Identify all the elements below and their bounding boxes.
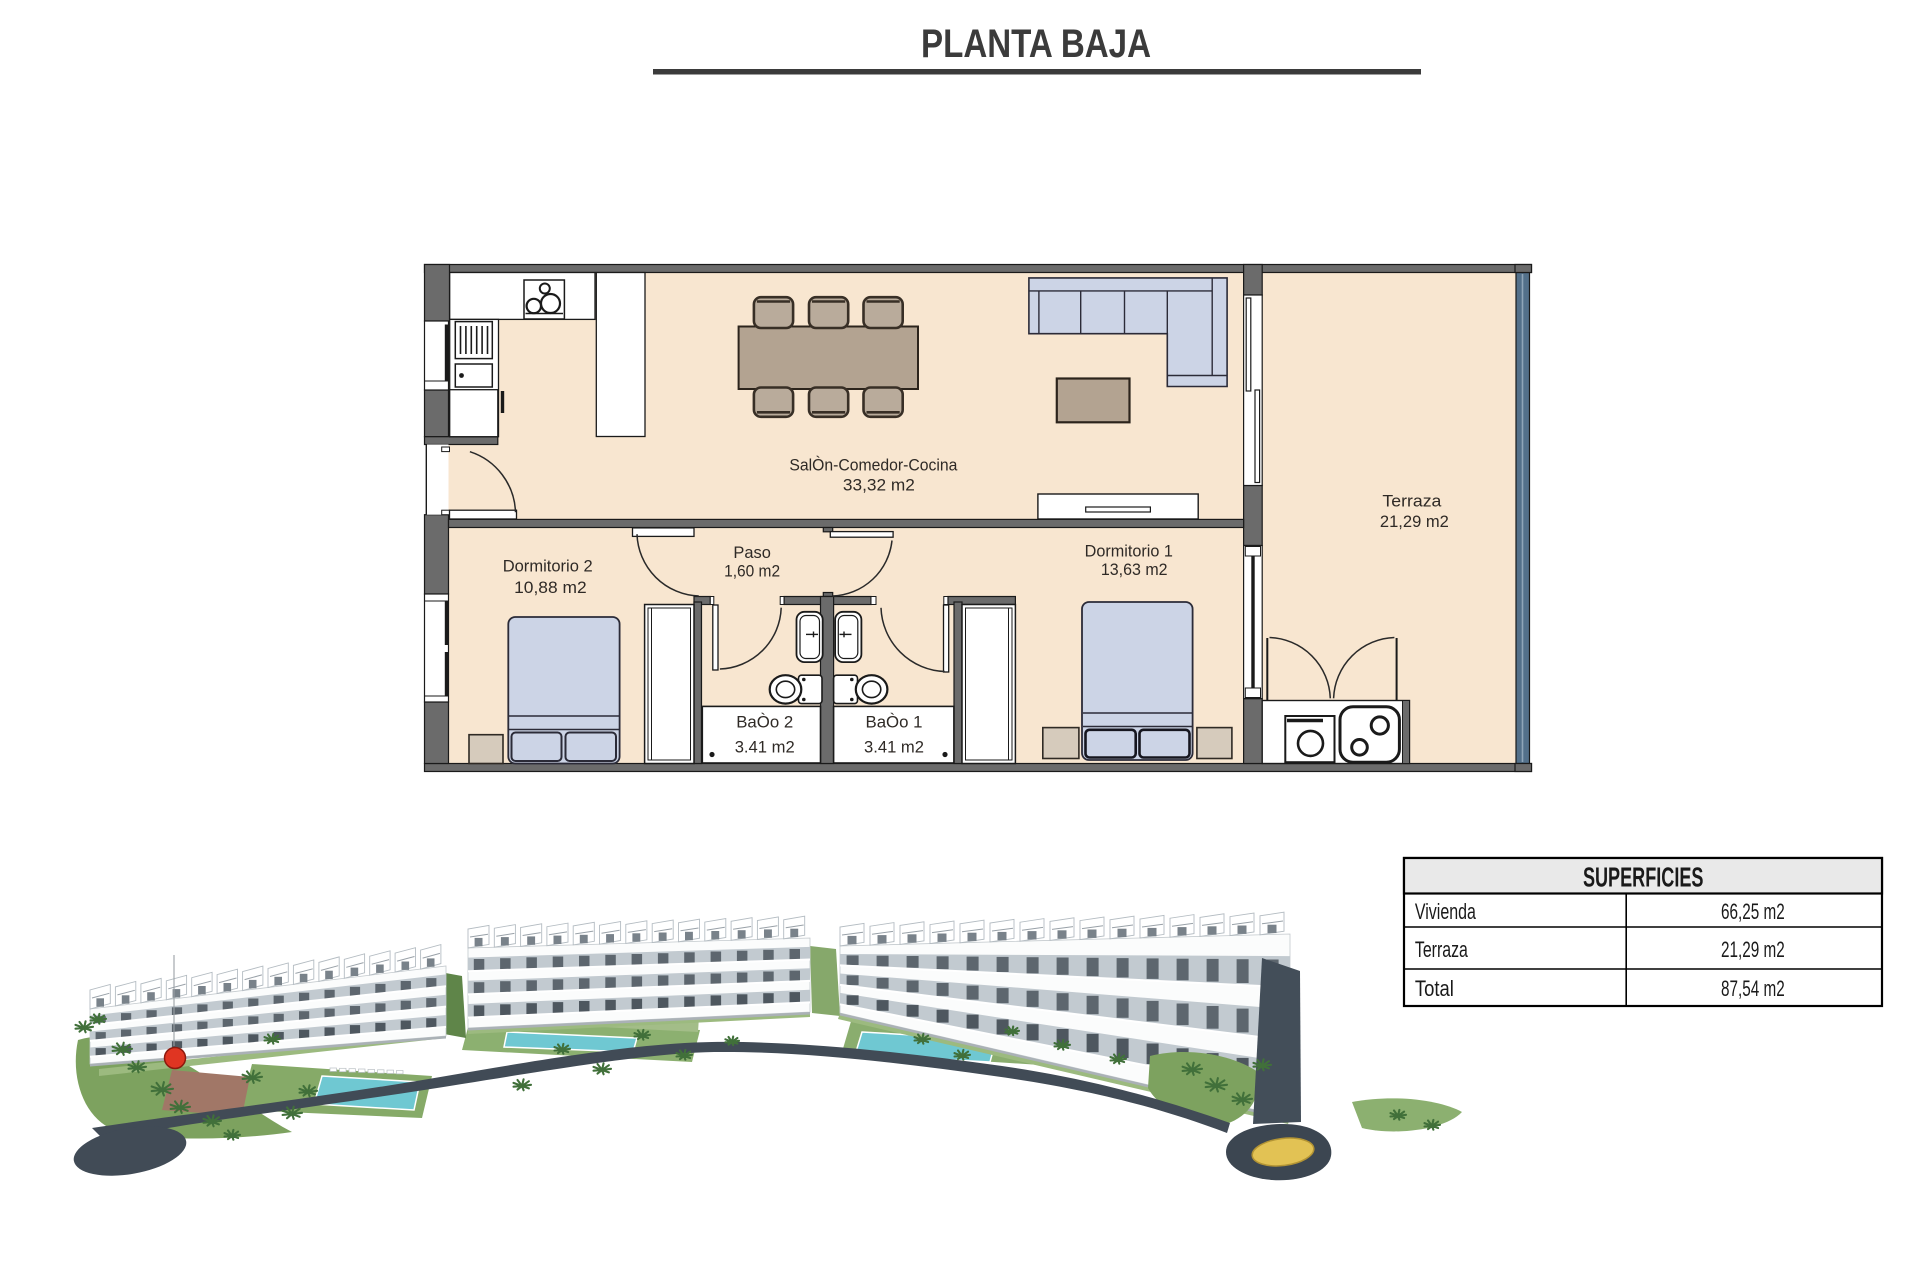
svg-text:PLANTA BAJA: PLANTA BAJA: [921, 22, 1151, 66]
svg-text:Dormitorio 2: Dormitorio 2: [503, 556, 593, 575]
svg-text:1,60 m2: 1,60 m2: [724, 562, 780, 581]
svg-text:21,29 m2: 21,29 m2: [1380, 512, 1449, 531]
svg-text:Terraza: Terraza: [1415, 937, 1469, 962]
svg-text:13,63 m2: 13,63 m2: [1101, 560, 1168, 579]
svg-text:66,25 m2: 66,25 m2: [1721, 899, 1785, 924]
svg-text:Terraza: Terraza: [1382, 491, 1442, 510]
svg-text:21,29 m2: 21,29 m2: [1721, 937, 1785, 962]
svg-text:33,32 m2: 33,32 m2: [843, 476, 915, 495]
svg-text:3.41 m2: 3.41 m2: [735, 738, 795, 757]
svg-text:SalÒn-Comedor-Cocina: SalÒn-Comedor-Cocina: [789, 456, 958, 475]
svg-text:SUPERFICIES: SUPERFICIES: [1583, 862, 1704, 893]
svg-text:Dormitorio 1: Dormitorio 1: [1085, 541, 1173, 560]
svg-text:BaÒo 2: BaÒo 2: [736, 713, 793, 732]
svg-text:10,88 m2: 10,88 m2: [514, 578, 587, 597]
svg-text:BaÒo 1: BaÒo 1: [866, 713, 923, 732]
svg-text:87,54 m2: 87,54 m2: [1721, 976, 1785, 1001]
svg-text:Paso: Paso: [733, 543, 771, 562]
svg-text:3.41 m2: 3.41 m2: [864, 738, 924, 757]
svg-text:Vivienda: Vivienda: [1415, 899, 1477, 924]
svg-text:Total: Total: [1415, 976, 1454, 1001]
